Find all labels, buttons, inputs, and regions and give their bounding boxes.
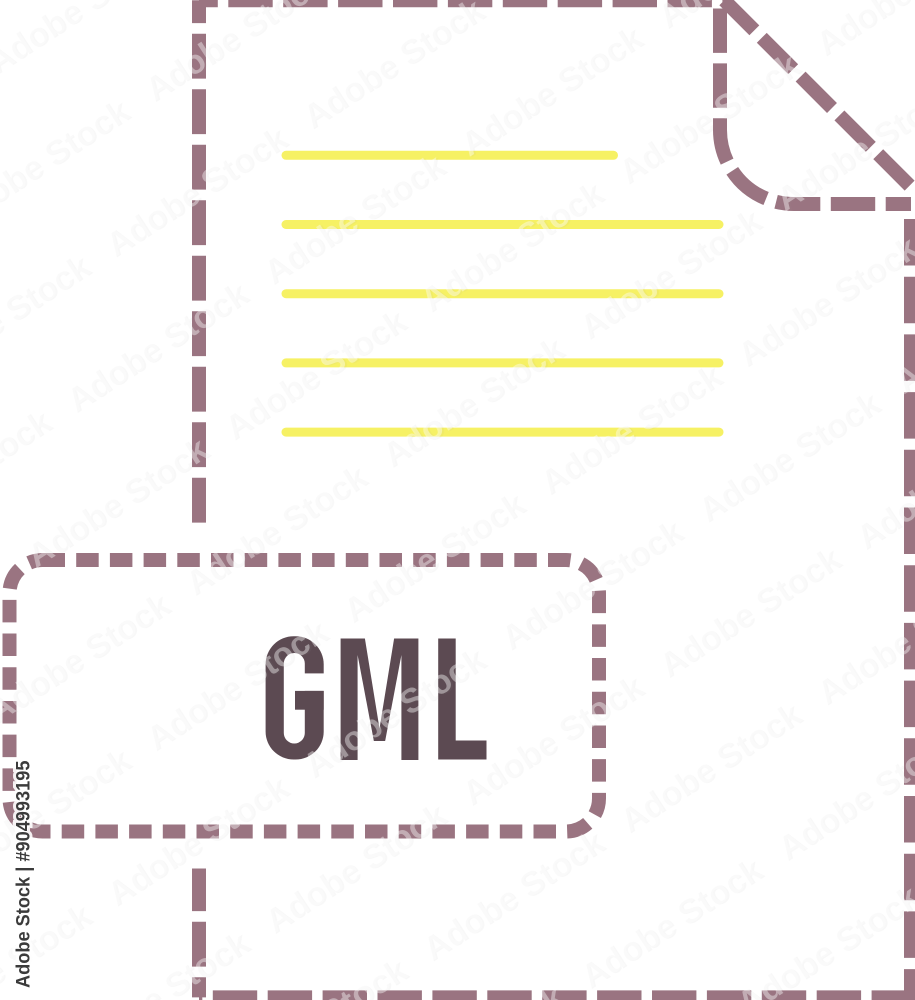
svg-text:Adobe Stock | #904993195: Adobe Stock | #904993195 [14,760,35,988]
